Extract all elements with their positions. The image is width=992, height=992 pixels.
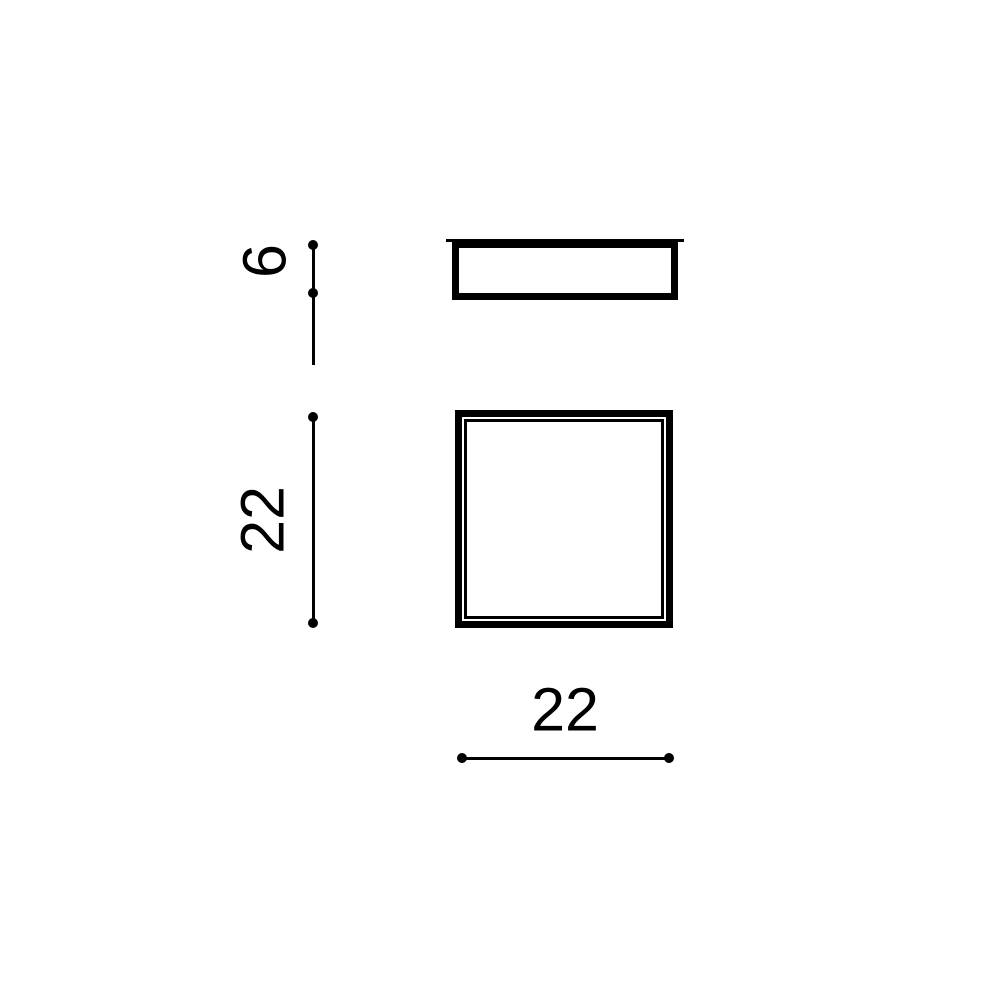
- dimension-drawing: 6 22 22: [0, 0, 992, 992]
- dimension-dot: [308, 288, 318, 298]
- dimension-line-height-6: [312, 243, 315, 365]
- dimension-dot: [664, 753, 674, 763]
- dimension-dot: [308, 240, 318, 250]
- dimension-label-height-22: 22: [233, 486, 294, 554]
- dimension-line-width-22: [462, 757, 669, 760]
- front-view-frame: [455, 410, 673, 628]
- dimension-label-height-6: 6: [235, 244, 296, 278]
- dimension-line-height-22: [312, 417, 315, 623]
- front-view-inner-line: [464, 419, 664, 619]
- dimension-dot: [308, 412, 318, 422]
- dimension-dot: [457, 753, 467, 763]
- side-view-body: [452, 241, 678, 300]
- dimension-dot: [308, 618, 318, 628]
- dimension-label-width-22: 22: [531, 680, 599, 741]
